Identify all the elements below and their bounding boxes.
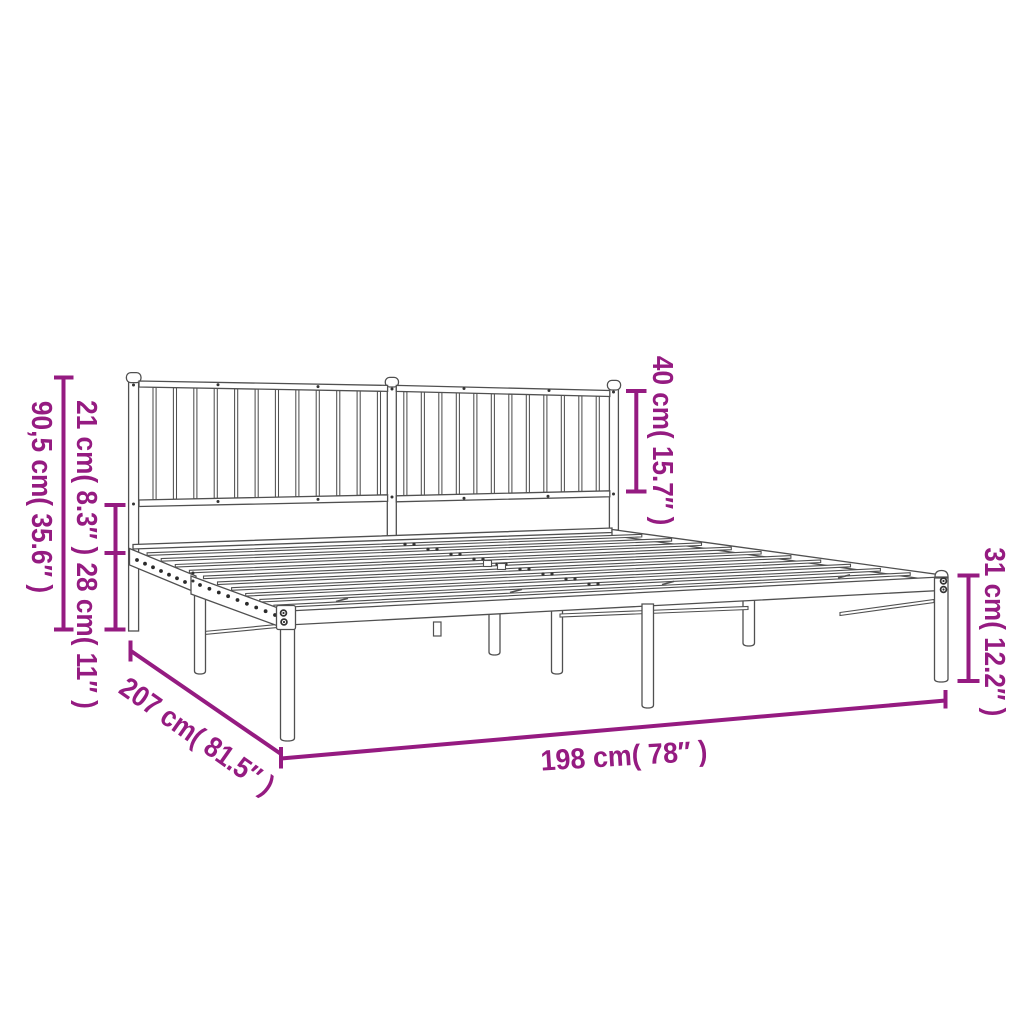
svg-text:21 cm( 8.3″ ) 28 cm( 11″ ): 21 cm( 8.3″ ) 28 cm( 11″ ) (71, 400, 104, 709)
svg-text:40 cm( 15.7″ ): 40 cm( 15.7″ ) (646, 356, 679, 525)
svg-text:31 cm( 12.2″ ): 31 cm( 12.2″ ) (978, 547, 1011, 716)
svg-text:90,5 cm( 35.6″ ): 90,5 cm( 35.6″ ) (26, 401, 58, 593)
